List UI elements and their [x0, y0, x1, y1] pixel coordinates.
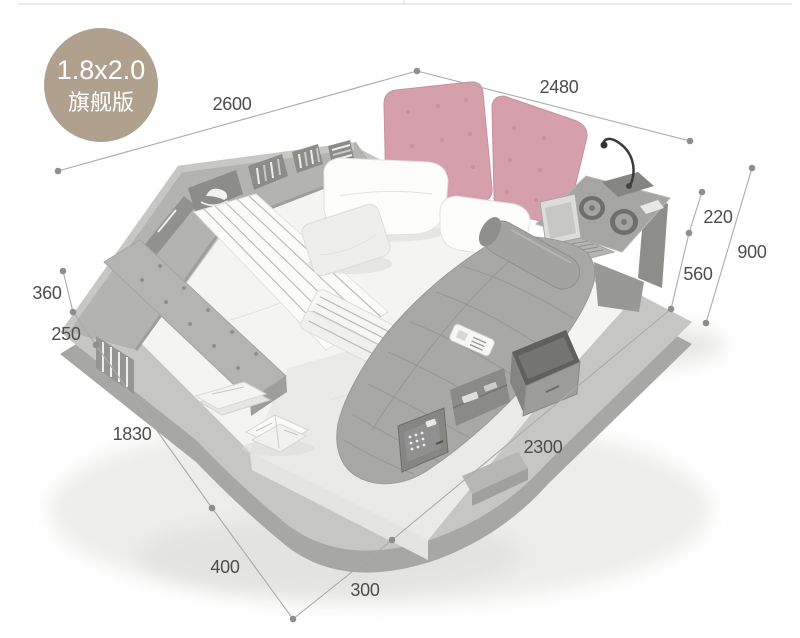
dim-label-300: 300 [350, 580, 379, 600]
size-badge: 1.8x2.0 旗舰版 [44, 28, 158, 142]
dim-label-900: 900 [737, 242, 766, 262]
speaker-left [579, 196, 605, 220]
badge-size-label: 1.8x2.0 [57, 55, 146, 85]
diagram-canvas: 2600 2480 220 560 900 360 250 1830 400 3… [0, 0, 800, 638]
dim-label-2300: 2300 [524, 437, 563, 457]
dim-label-2600: 2600 [213, 94, 252, 114]
dim-label-360: 360 [32, 283, 61, 303]
dim-label-220: 220 [703, 207, 732, 227]
dim-label-560: 560 [683, 264, 712, 284]
dim-line-220-560 [671, 192, 702, 309]
size-badge-circle [44, 28, 158, 142]
dim-label-250: 250 [51, 324, 80, 344]
bed-illustration [50, 82, 725, 605]
table-leg [594, 262, 644, 312]
dim-label-400: 400 [210, 557, 239, 577]
speaker-right [610, 209, 638, 235]
dim-label-1830: 1830 [113, 424, 152, 444]
dim-label-2480: 2480 [540, 77, 579, 97]
badge-edition-label: 旗舰版 [68, 90, 134, 115]
top-border [18, 0, 792, 4]
bed-dimension-diagram: 2600 2480 220 560 900 360 250 1830 400 3… [0, 0, 800, 638]
